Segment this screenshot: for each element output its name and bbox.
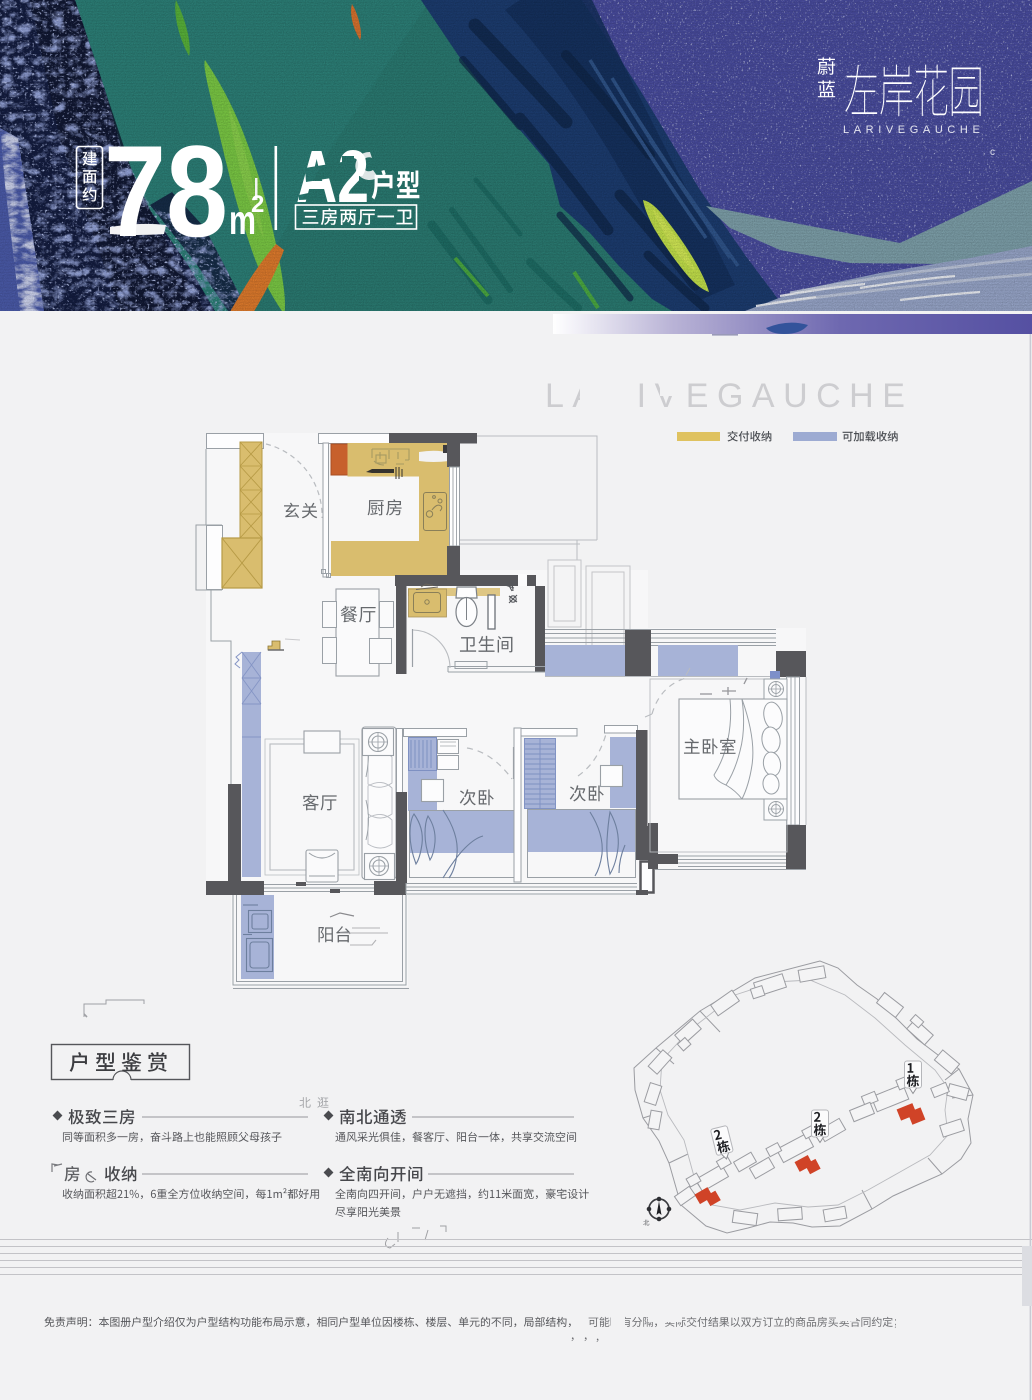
- svg-text:78: 78: [104, 118, 228, 264]
- svg-text:c: c: [990, 147, 995, 158]
- svg-text:LARIVEGAUCHE: LARIVEGAUCHE: [843, 124, 984, 136]
- svg-text:2: 2: [251, 191, 264, 218]
